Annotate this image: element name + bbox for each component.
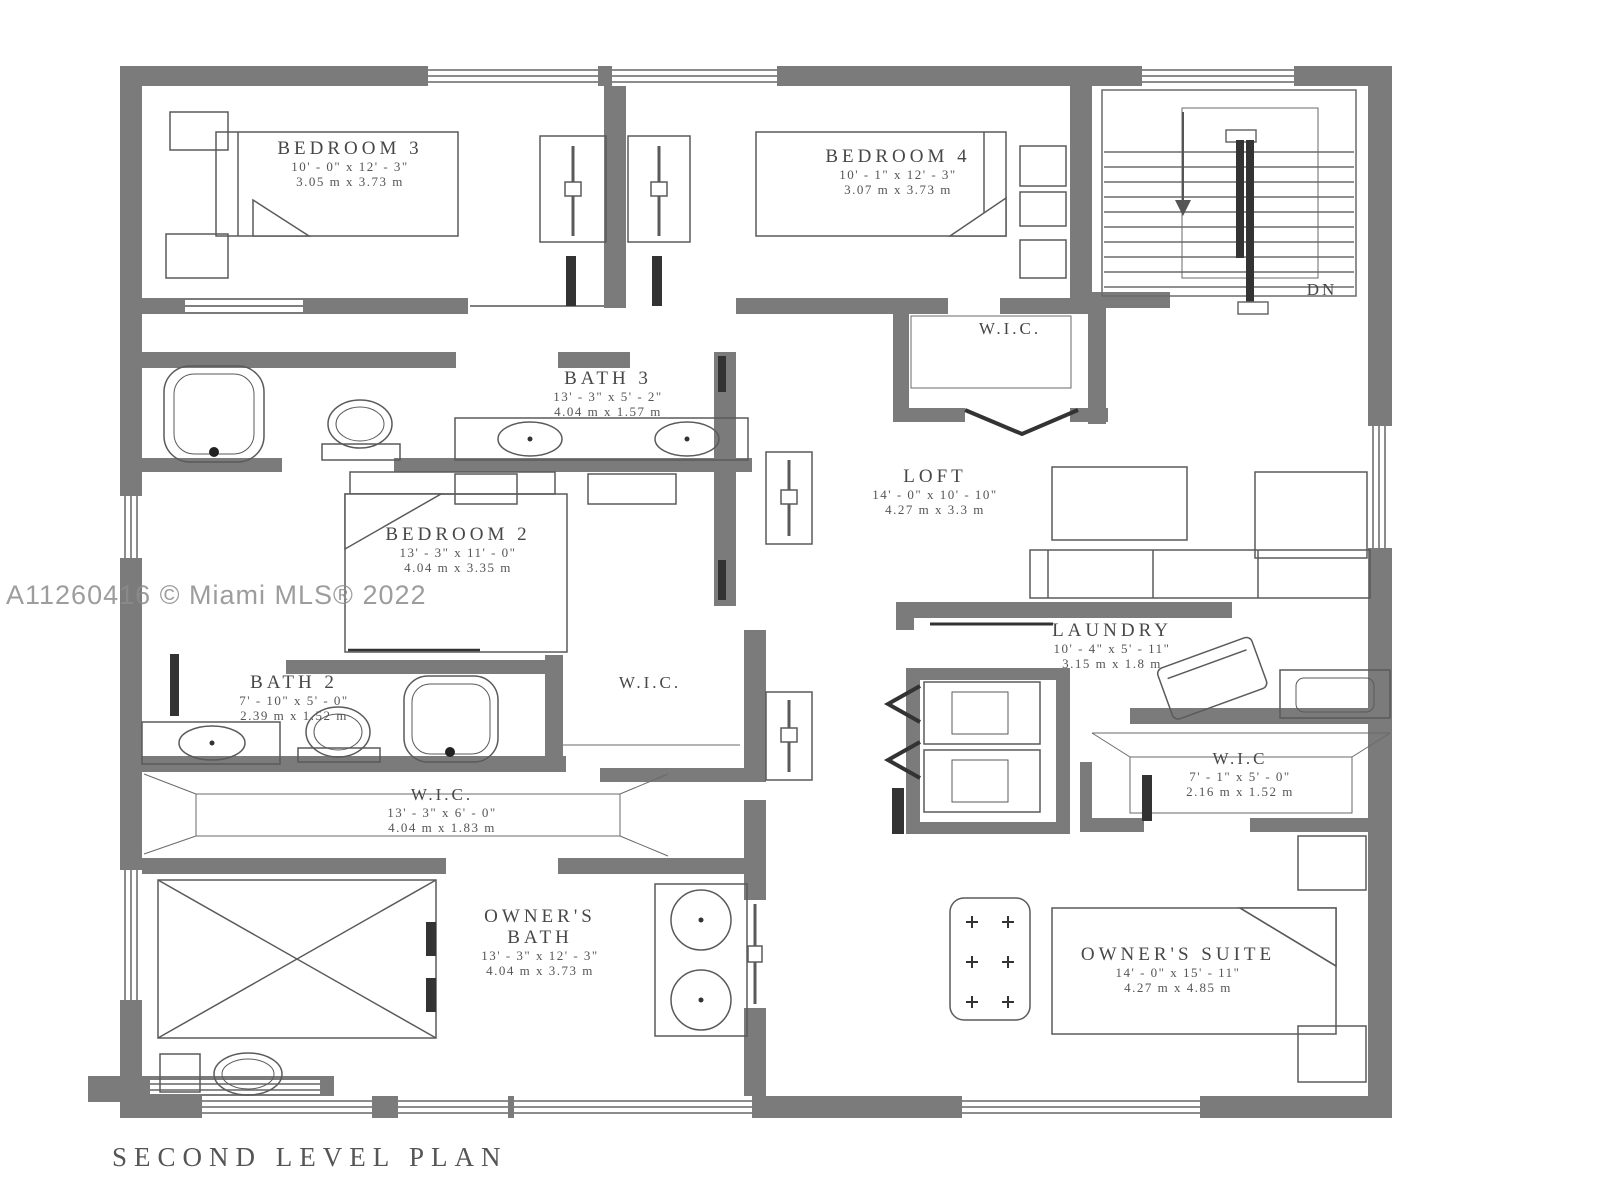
mls-watermark: A11260416 © Miami MLS® 2022: [6, 580, 427, 611]
toilet-base: [322, 444, 400, 460]
table: [1052, 467, 1187, 540]
double-vanity: [655, 884, 747, 1036]
nightstand: [166, 234, 228, 278]
stairs-dn-label: DN: [1307, 280, 1338, 300]
nightstand: [170, 112, 228, 150]
washer: [924, 682, 1040, 744]
nightstand: [1298, 836, 1366, 890]
owners-suite-label: OWNER'S SUITE 14' - 0" x 15' - 11" 4.27 …: [1081, 944, 1275, 995]
laundry-basket: [1156, 636, 1268, 721]
loft-label: LOFT 14' - 0" x 10' - 10" 4.27 m x 3.3 m: [872, 466, 997, 517]
bath3-label: BATH 3 13' - 3" x 5' - 2" 4.04 m x 1.57 …: [553, 368, 662, 419]
nightstand: [1020, 146, 1066, 186]
wic-large-label: W.I.C. 13' - 3" x 6' - 0" 4.04 m x 1.83 …: [387, 784, 496, 835]
bedroom4-label: BEDROOM 4 10' - 1" x 12' - 3" 3.07 m x 3…: [825, 146, 970, 197]
bed-fold: [950, 198, 1006, 236]
wic-mid-label: W.I.C.: [619, 672, 681, 693]
nightstand: [1020, 192, 1066, 226]
bedroom2-label: BEDROOM 2 13' - 3" x 11' - 0" 4.04 m x 3…: [385, 524, 530, 575]
stairs-down-arrow: [1175, 112, 1191, 216]
dresser: [588, 474, 676, 504]
owners-bath-fixtures: [158, 880, 762, 1095]
dryer: [924, 750, 1040, 812]
sofa: [1030, 550, 1370, 598]
sofa-chaise: [1255, 472, 1367, 558]
bath2-label: BATH 2 7' - 10" x 5' - 0" 2.39 m x 1.52 …: [239, 672, 348, 723]
loft-furniture: [1030, 467, 1370, 598]
bed-fold: [253, 200, 309, 236]
plan-title: SECOND LEVEL PLAN: [112, 1142, 508, 1173]
headboard: [350, 472, 555, 494]
nightstand: [1020, 240, 1066, 278]
owners-bath-label: OWNER'S BATH 13' - 3" x 12' - 3" 4.04 m …: [481, 906, 598, 978]
sliding-door: [766, 452, 812, 544]
floor-plan: BEDROOM 3 10' - 0" x 12' - 3" 3.05 m x 3…: [0, 0, 1600, 1200]
laundry-label: LAUNDRY 10' - 4" x 5' - 11" 3.15 m x 1.8…: [1052, 620, 1172, 671]
sliding-door: [766, 692, 812, 780]
bedroom3-furniture: [166, 112, 458, 278]
bedroom3-label: BEDROOM 3 10' - 0" x 12' - 3" 3.05 m x 3…: [277, 138, 422, 189]
bench: [950, 898, 1030, 1020]
wic-right-label: W.I.C 7' - 1" x 5' - 0" 2.16 m x 1.52 m: [1186, 748, 1294, 799]
nightstand: [455, 474, 517, 504]
wic-top-label: W.I.C.: [979, 318, 1041, 339]
